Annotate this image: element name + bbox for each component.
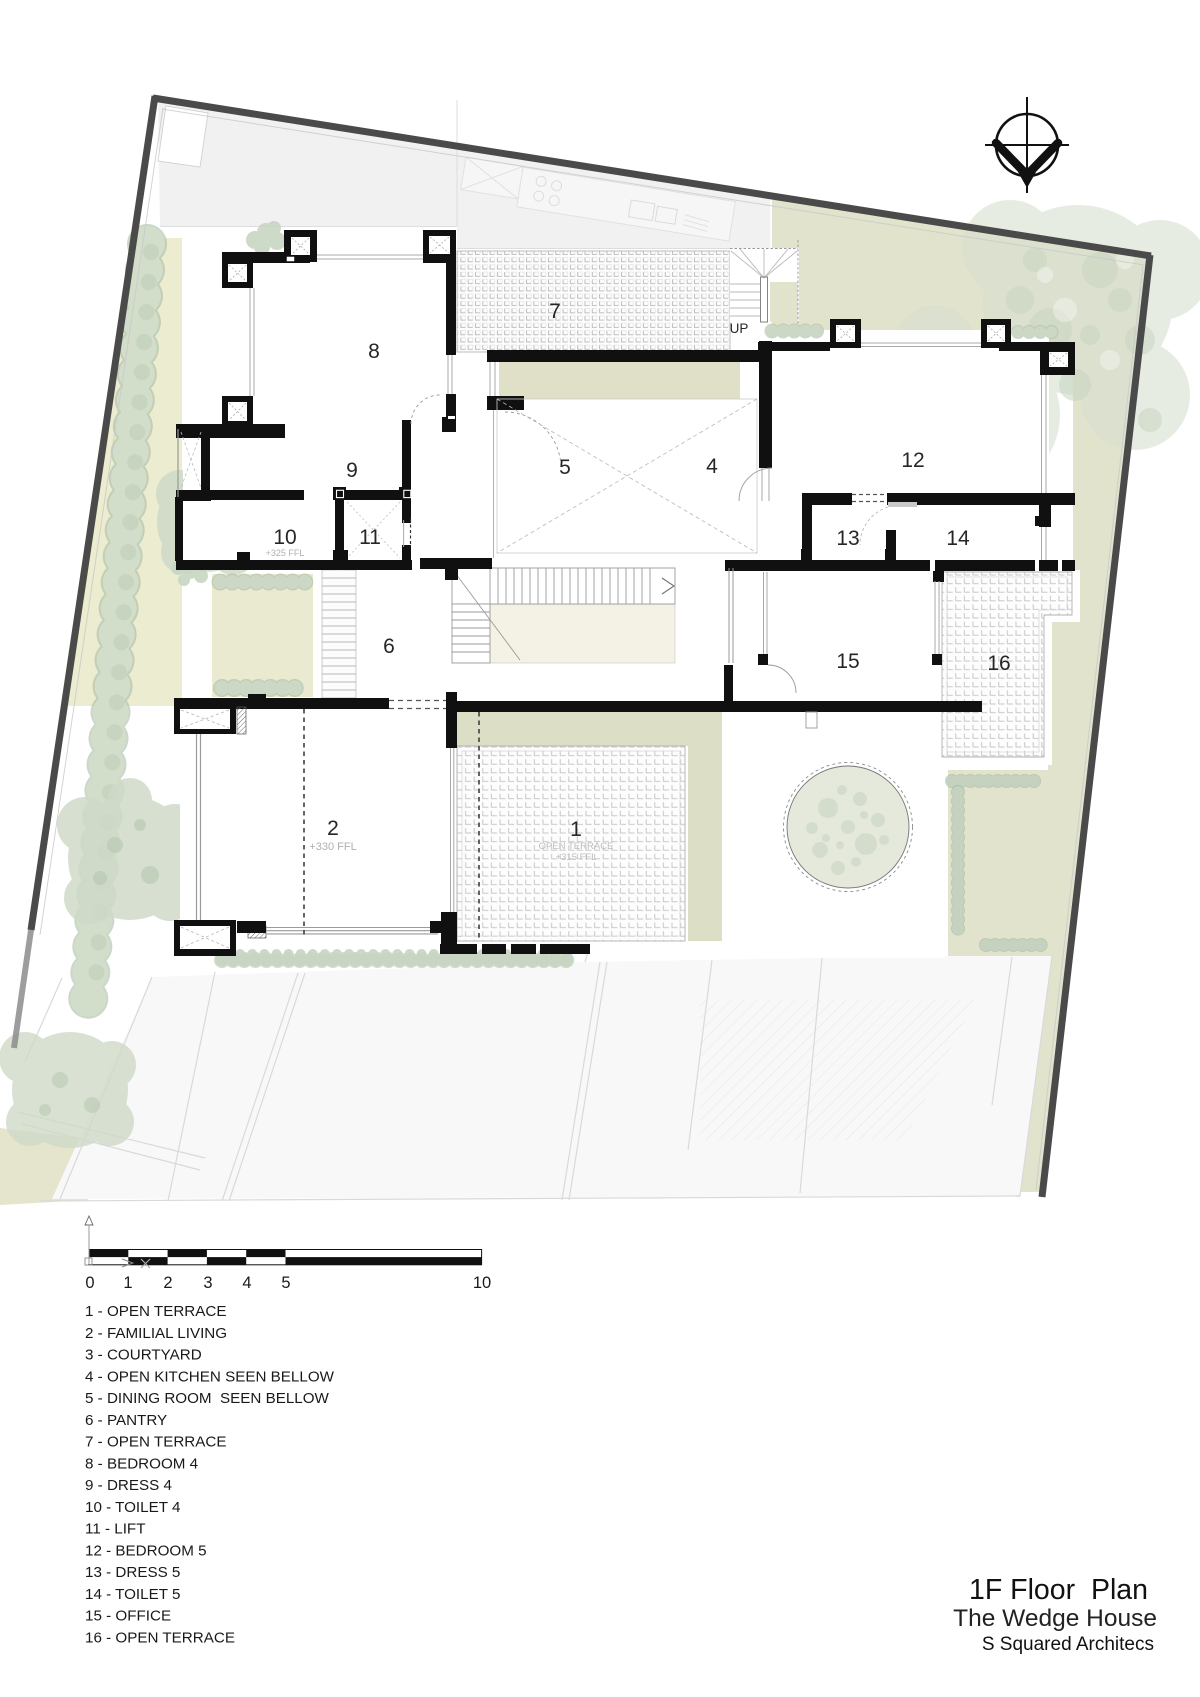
svg-text:13 - DRESS 5: 13 - DRESS 5	[85, 1564, 180, 1581]
svg-text:12 - BEDROOM 5: 12 - BEDROOM 5	[85, 1542, 207, 1559]
svg-text:0: 0	[85, 1274, 94, 1292]
svg-text:S Squared Architecs: S Squared Architecs	[982, 1634, 1154, 1655]
svg-text:6: 6	[383, 635, 395, 658]
svg-text:+315 FFL: +315 FFL	[556, 852, 597, 863]
svg-text:5: 5	[559, 456, 571, 479]
svg-text:5: 5	[281, 1274, 290, 1292]
svg-text:16: 16	[987, 652, 1010, 675]
svg-text:8: 8	[368, 340, 380, 363]
svg-text:7 - OPEN TERRACE: 7 - OPEN TERRACE	[85, 1434, 227, 1451]
svg-text:4 - OPEN KITCHEN SEEN BELLOW: 4 - OPEN KITCHEN SEEN BELLOW	[85, 1368, 335, 1385]
svg-text:9: 9	[346, 459, 358, 482]
svg-text:2: 2	[327, 817, 339, 840]
svg-text:6 - PANTRY: 6 - PANTRY	[85, 1412, 167, 1429]
svg-text:1: 1	[570, 818, 582, 841]
svg-text:1: 1	[123, 1274, 132, 1292]
svg-text:15 - OFFICE: 15 - OFFICE	[85, 1608, 171, 1625]
svg-text:1 - OPEN TERRACE: 1 - OPEN TERRACE	[85, 1303, 227, 1320]
svg-text:+325 FFL: +325 FFL	[266, 548, 305, 558]
svg-text:3: 3	[203, 1274, 212, 1292]
svg-text:9 - DRESS 4: 9 - DRESS 4	[85, 1477, 172, 1494]
svg-text:3 - COURTYARD: 3 - COURTYARD	[85, 1347, 202, 1364]
svg-text:11: 11	[359, 526, 381, 549]
svg-text:UP: UP	[730, 321, 749, 336]
svg-text:The Wedge House: The Wedge House	[953, 1605, 1157, 1632]
svg-text:14 - TOILET 5: 14 - TOILET 5	[85, 1586, 180, 1603]
svg-text:14: 14	[946, 527, 970, 550]
svg-text:2 - FAMILIAL LIVING: 2 - FAMILIAL LIVING	[85, 1325, 227, 1342]
svg-text:13: 13	[836, 527, 859, 550]
svg-text:7: 7	[549, 300, 561, 323]
svg-text:16 - OPEN TERRACE: 16 - OPEN TERRACE	[85, 1629, 235, 1646]
svg-text:OPEN TERRACE: OPEN TERRACE	[539, 841, 614, 852]
svg-text:10: 10	[273, 526, 296, 549]
svg-text:4: 4	[706, 455, 718, 478]
svg-text:10 - TOILET 4: 10 - TOILET 4	[85, 1499, 180, 1516]
svg-text:8 - BEDROOM 4: 8 - BEDROOM 4	[85, 1455, 198, 1472]
svg-text:11 - LIFT: 11 - LIFT	[85, 1521, 145, 1538]
svg-text:4: 4	[242, 1274, 251, 1292]
svg-text:2: 2	[163, 1274, 172, 1292]
svg-text:5 - DINING ROOM SEEN BELLOW: 5 - DINING ROOM SEEN BELLOW	[85, 1390, 330, 1407]
svg-text:+330 FFL: +330 FFL	[309, 841, 356, 853]
svg-text:12: 12	[901, 449, 924, 472]
svg-text:1F Floor Plan: 1F Floor Plan	[969, 1574, 1148, 1606]
svg-text:15: 15	[836, 650, 859, 673]
svg-text:10: 10	[473, 1274, 491, 1292]
